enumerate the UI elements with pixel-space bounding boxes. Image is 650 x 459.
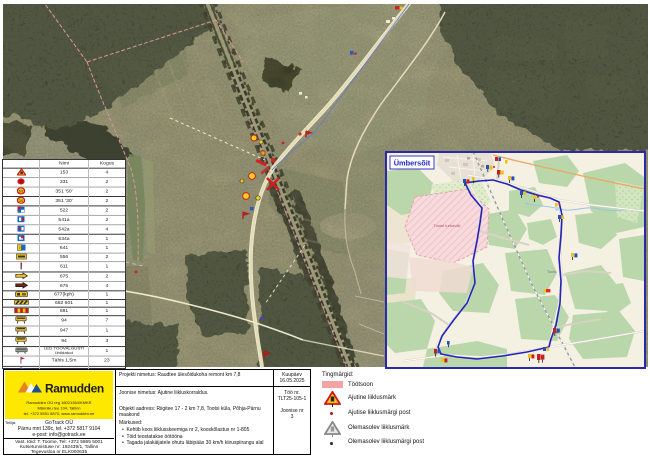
svg-text:50: 50 xyxy=(19,189,23,193)
svg-text:Ramudden: Ramudden xyxy=(45,382,104,396)
svg-text:Tootsi turbaväli: Tootsi turbaväli xyxy=(434,223,461,228)
svg-text:!: ! xyxy=(19,245,20,250)
svg-text:Männiku tee 104, Tallinn: Männiku tee 104, Tallinn xyxy=(37,406,80,411)
svg-text:Tootsi: Tootsi xyxy=(547,270,557,274)
svg-text:Ümbersõit: Ümbersõit xyxy=(394,159,431,168)
svg-text:tel. +372 5551 8870, www.ramud: tel. +372 5551 8870, www.ramudden.ee xyxy=(24,411,96,416)
svg-text:Ramudden OÜ reg 16021364/KMKR: Ramudden OÜ reg 16021364/KMKR xyxy=(26,400,91,405)
svg-text:30: 30 xyxy=(19,199,23,203)
